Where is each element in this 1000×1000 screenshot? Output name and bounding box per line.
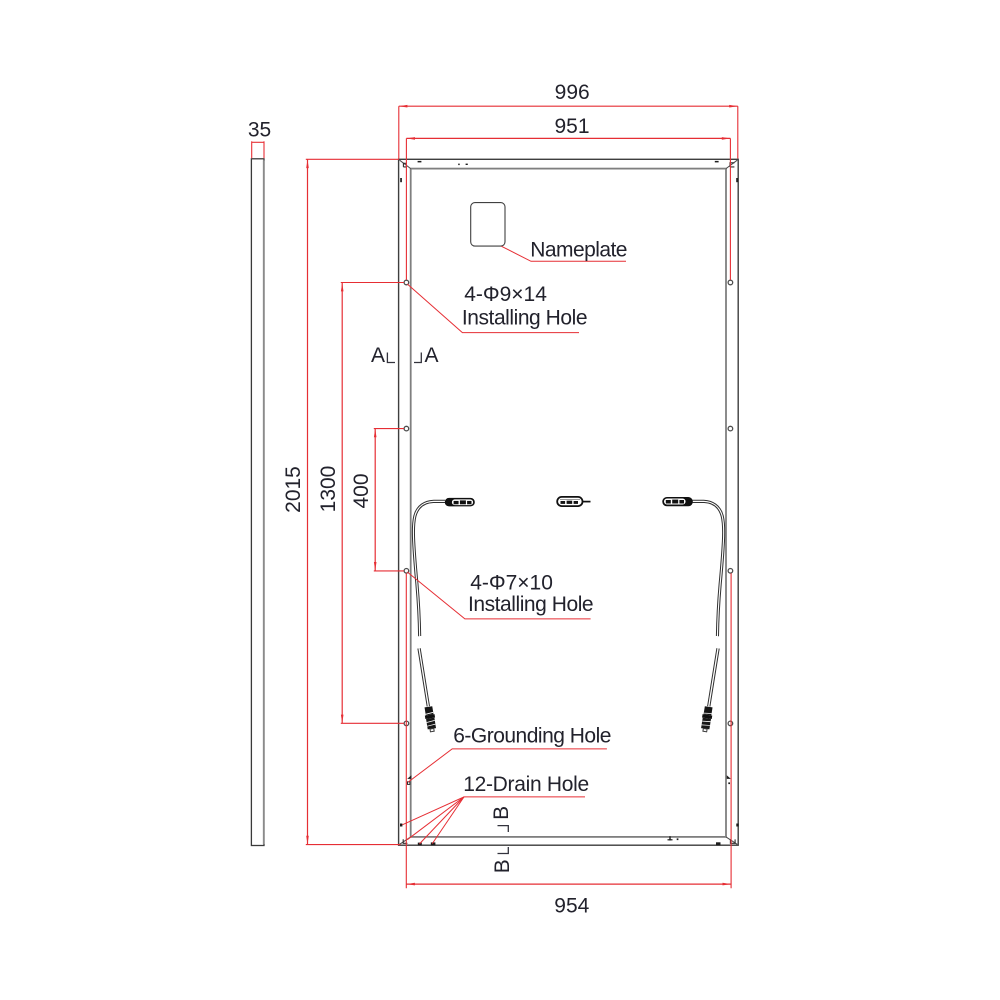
svg-text:2015: 2015 [282,466,305,513]
svg-text:A: A [371,344,385,367]
svg-text:6-Grounding Hole: 6-Grounding Hole [453,724,611,747]
svg-text:954: 954 [554,894,589,917]
svg-text:A: A [424,344,438,367]
svg-text:400: 400 [350,473,373,508]
svg-text:4-Φ9×14: 4-Φ9×14 [464,283,547,306]
svg-text:Installing Hole: Installing Hole [462,306,587,329]
svg-text:951: 951 [554,115,589,138]
svg-text:Installing Hole: Installing Hole [468,593,593,616]
svg-text:35: 35 [248,119,271,142]
svg-text:4-Φ7×10: 4-Φ7×10 [470,571,553,594]
svg-text:12-Drain Hole: 12-Drain Hole [463,773,589,796]
svg-text:1300: 1300 [317,466,340,513]
svg-text:B: B [490,806,513,820]
svg-text:Nameplate: Nameplate [530,239,627,262]
svg-text:996: 996 [555,81,590,104]
svg-text:B: B [491,859,514,873]
